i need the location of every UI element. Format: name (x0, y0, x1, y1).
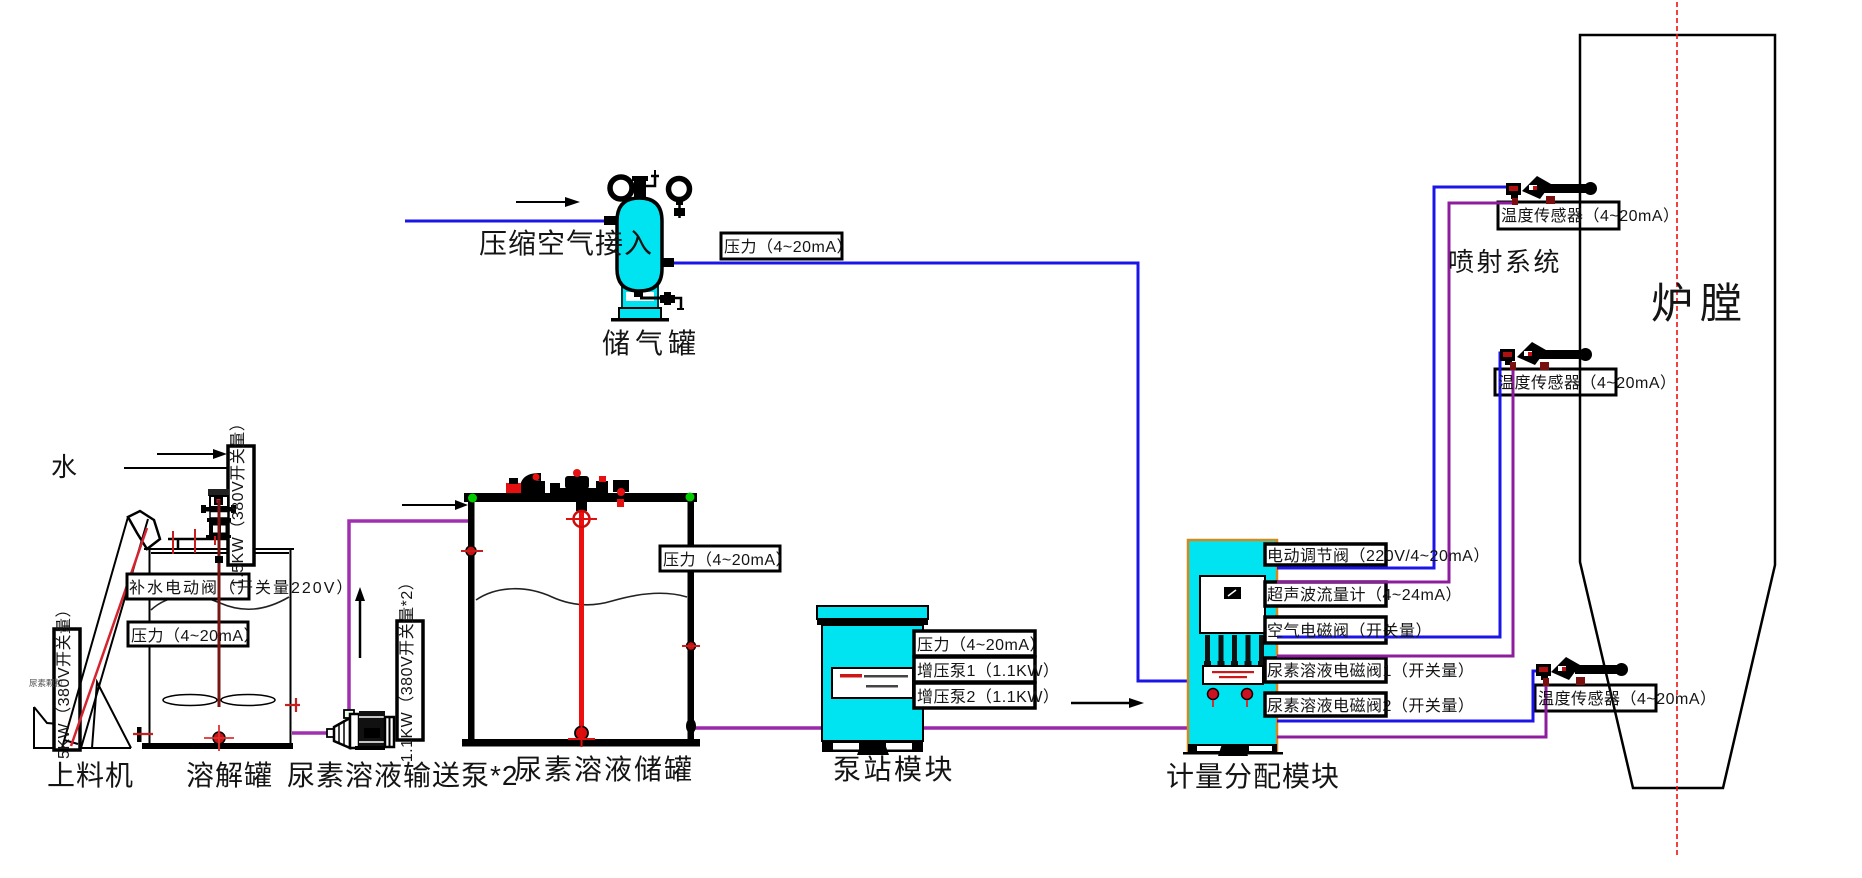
svg-text:尿素溶液电磁阀2（开关量）: 尿素溶液电磁阀2（开关量） (1267, 697, 1474, 715)
svg-text:压力（4~20mA）: 压力（4~20mA） (724, 238, 853, 256)
svg-text:炉膛: 炉膛 (1651, 280, 1749, 327)
svg-text:压力（4~20mA）: 压力（4~20mA） (131, 627, 260, 645)
svg-text:压力（4~20mA）: 压力（4~20mA） (917, 636, 1046, 654)
svg-text:空气电磁阀（开关量）: 空气电磁阀（开关量） (1267, 622, 1432, 640)
svg-text:电动调节阀（220V/4~20mA）: 电动调节阀（220V/4~20mA） (1267, 547, 1490, 565)
svg-text:温度传感器（4~20mA）: 温度传感器（4~20mA） (1498, 374, 1677, 392)
svg-text:计量分配模块: 计量分配模块 (1166, 761, 1340, 792)
svg-text:泵站模块: 泵站模块 (833, 754, 955, 785)
svg-text:5KW（380V开关量）: 5KW（380V开关量） (55, 601, 73, 759)
svg-text:增压泵2（1.1KW）: 增压泵2（1.1KW） (917, 688, 1059, 706)
svg-text:温度传感器（4~20mA）: 温度传感器（4~20mA） (1538, 690, 1717, 708)
svg-text:尿素溶液储罐: 尿素溶液储罐 (514, 754, 694, 785)
svg-text:1.1KW（380V开关量*2）: 1.1KW（380V开关量*2） (398, 574, 416, 763)
svg-text:尿素溶液电磁阀1（开关量）: 尿素溶液电磁阀1（开关量） (1267, 662, 1474, 680)
svg-text:上料机: 上料机 (47, 760, 134, 791)
svg-text:超声波流量计（4~24mA）: 超声波流量计（4~24mA） (1267, 586, 1462, 604)
svg-text:储气罐: 储气罐 (602, 328, 701, 359)
svg-text:温度传感器（4~20mA）: 温度传感器（4~20mA） (1501, 207, 1680, 225)
svg-text:1.5KW（380V开关量）: 1.5KW（380V开关量） (229, 415, 247, 587)
svg-text:溶解罐: 溶解罐 (186, 760, 273, 791)
svg-text:尿素溶液输送泵*2: 尿素溶液输送泵*2 (287, 760, 518, 791)
svg-text:喷射系统: 喷射系统 (1448, 247, 1562, 277)
svg-text:增压泵1（1.1KW）: 增压泵1（1.1KW） (917, 662, 1059, 680)
svg-text:水: 水 (51, 452, 77, 482)
svg-text:压缩空气接入: 压缩空气接入 (479, 228, 653, 259)
svg-text:压力（4~20mA）: 压力（4~20mA） (663, 551, 792, 569)
